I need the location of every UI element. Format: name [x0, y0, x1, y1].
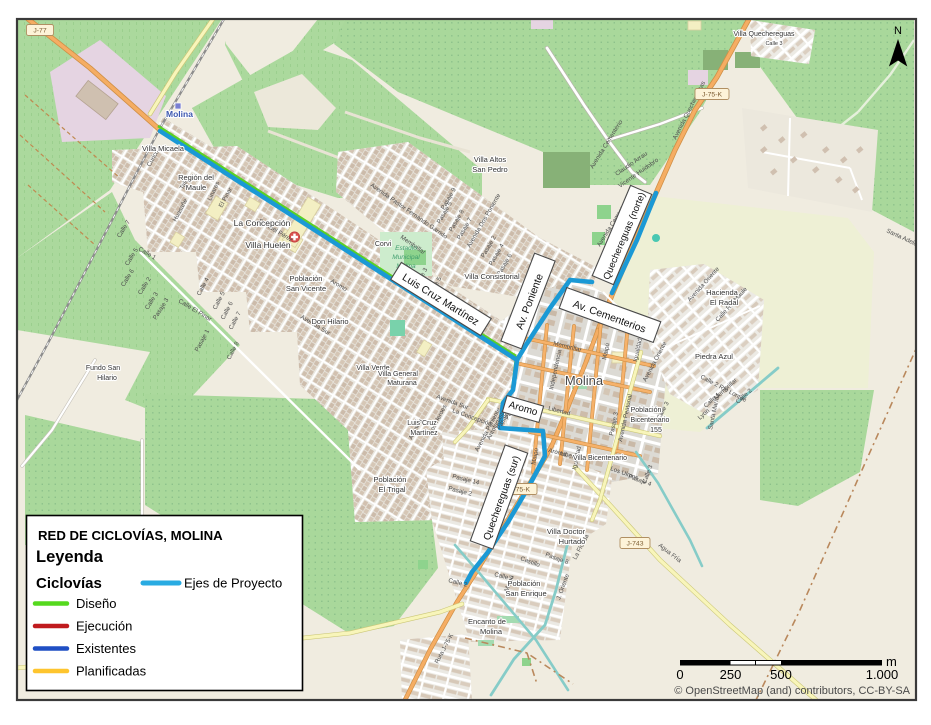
- svg-text:San Pedro: San Pedro: [472, 165, 507, 174]
- svg-text:Villa Bicentenario: Villa Bicentenario: [573, 455, 627, 462]
- svg-text:Población: Población: [508, 579, 541, 588]
- svg-text:Hacienda: Hacienda: [706, 288, 739, 297]
- svg-text:Hurtado: Hurtado: [559, 537, 586, 546]
- svg-text:Molina: Molina: [565, 373, 604, 388]
- svg-text:J-77: J-77: [33, 28, 46, 35]
- svg-text:Molina: Molina: [166, 109, 193, 119]
- svg-text:Maule: Maule: [186, 183, 206, 192]
- svg-text:250: 250: [720, 667, 742, 682]
- svg-text:Martínez: Martínez: [410, 430, 438, 437]
- svg-text:Ciclovías: Ciclovías: [36, 575, 102, 592]
- svg-text:Ejecución: Ejecución: [76, 619, 132, 634]
- svg-text:1.000: 1.000: [866, 667, 899, 682]
- svg-text:J-75-K: J-75-K: [702, 92, 722, 99]
- svg-text:Municipal: Municipal: [392, 254, 420, 261]
- svg-text:Corvi: Corvi: [375, 241, 392, 248]
- svg-text:Ejes de Proyecto: Ejes de Proyecto: [184, 576, 282, 591]
- svg-text:m: m: [886, 654, 897, 669]
- svg-text:Hilario: Hilario: [97, 375, 117, 382]
- svg-text:San Vicente: San Vicente: [286, 284, 326, 293]
- svg-text:J-743: J-743: [626, 541, 643, 548]
- svg-text:Calle 3: Calle 3: [765, 41, 782, 47]
- svg-text:© OpenStreetMap (and) contribu: © OpenStreetMap (and) contributors, CC-B…: [674, 685, 910, 697]
- svg-text:Piedra Azul: Piedra Azul: [695, 352, 733, 361]
- svg-text:Villa Micaela: Villa Micaela: [142, 144, 185, 153]
- svg-text:Villa Altos: Villa Altos: [474, 155, 507, 164]
- svg-text:Existentes: Existentes: [76, 641, 136, 656]
- svg-text:San Enrique: San Enrique: [505, 589, 546, 598]
- svg-text:La Concepción: La Concepción: [234, 218, 291, 228]
- svg-text:Encanto de: Encanto de: [468, 617, 506, 626]
- svg-text:Población: Población: [374, 475, 407, 484]
- svg-text:Estadio: Estadio: [395, 245, 417, 252]
- svg-text:Molina: Molina: [480, 627, 503, 636]
- svg-text:El Trigal: El Trigal: [378, 485, 405, 494]
- svg-text:Fundo San: Fundo San: [86, 365, 120, 372]
- svg-text:Villa Quechereguas: Villa Quechereguas: [734, 31, 795, 38]
- svg-text:Bicentenario: Bicentenario: [631, 417, 670, 424]
- svg-text:Leyenda: Leyenda: [36, 548, 104, 566]
- svg-text:Villa Consistorial: Villa Consistorial: [464, 272, 520, 281]
- svg-text:Población: Población: [631, 407, 662, 414]
- svg-text:N: N: [894, 25, 902, 37]
- svg-text:Diseño: Diseño: [76, 596, 116, 611]
- svg-text:500: 500: [770, 667, 792, 682]
- svg-text:Población: Población: [290, 274, 323, 283]
- svg-text:Planificadas: Planificadas: [76, 664, 147, 679]
- svg-text:Región del: Región del: [178, 173, 214, 182]
- svg-text:Maturana: Maturana: [387, 380, 417, 387]
- svg-text:Villa Doctor: Villa Doctor: [547, 527, 586, 536]
- svg-text:RED DE CICLOVÍAS, MOLINA: RED DE CICLOVÍAS, MOLINA: [38, 528, 223, 543]
- svg-text:Don Hilario: Don Hilario: [311, 317, 348, 326]
- svg-text:El Radal: El Radal: [710, 298, 739, 307]
- svg-text:155: 155: [650, 427, 662, 434]
- svg-text:Villa General: Villa General: [378, 371, 418, 378]
- svg-text:Villa Huelén: Villa Huelén: [245, 240, 290, 250]
- svg-text:Luis Cruz: Luis Cruz: [407, 420, 437, 427]
- svg-text:0: 0: [676, 667, 683, 682]
